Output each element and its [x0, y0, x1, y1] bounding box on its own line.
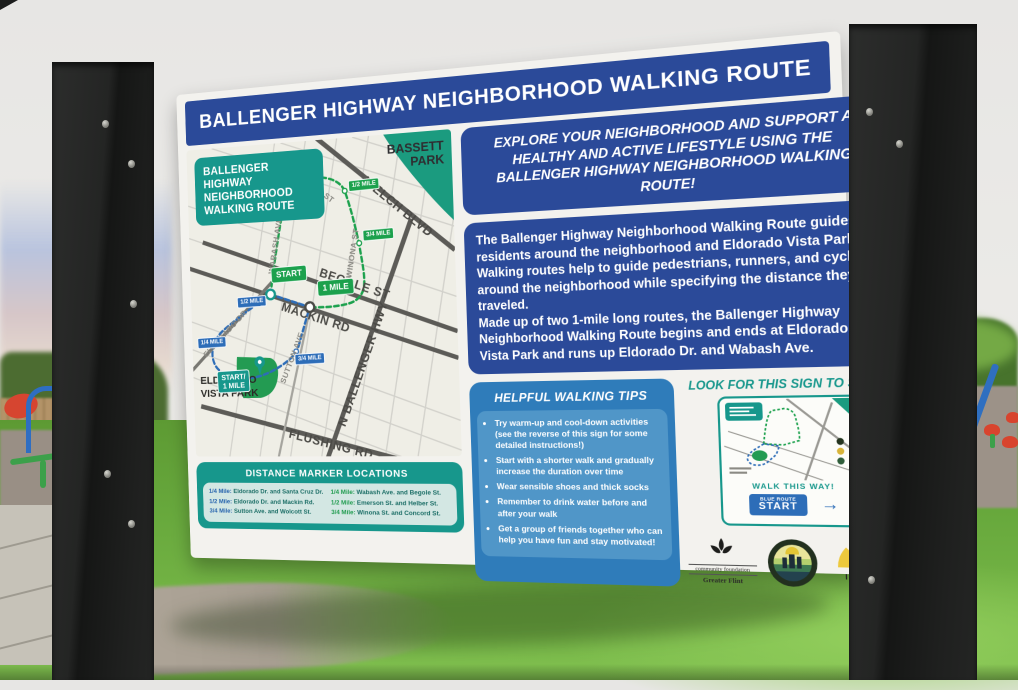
marker-label: 3/4 Mile: [209, 508, 232, 515]
seal-building [796, 557, 801, 569]
start-button-label: START [749, 502, 807, 513]
start-one-mile-line2: 1 MILE [222, 381, 247, 391]
walking-tips-list: Try warm-up and cool-down activities (se… [477, 409, 673, 560]
tip-item: Start with a shorter walk and gradually … [496, 455, 662, 478]
distance-marker-body: 1/4 Mile: Eldorado Dr. and Santa Cruz Dr… [203, 483, 458, 526]
route-description: The Ballenger Highway Neighborhood Walki… [464, 198, 902, 374]
tip-item: Get a group of friends together who can … [498, 523, 665, 548]
marker-text: Emerson St. and Helber St. [357, 499, 438, 507]
seal-building [788, 555, 794, 569]
seal-sun [785, 547, 799, 555]
marker-label: 1/2 Mile: [209, 498, 232, 505]
bassett-park-label2: PARK [410, 152, 444, 169]
walking-route-sign: BALLENGER HIGHWAY NEIGHBORHOOD WALKING R… [176, 31, 860, 574]
mini-legend-line [730, 411, 750, 413]
left-post [52, 62, 154, 680]
bolt [868, 576, 875, 584]
marker-label: 1/2 Mile: [331, 499, 356, 506]
playground-mushroom-seat [1002, 436, 1018, 448]
mini-eldorado-park [752, 451, 768, 462]
tip-item: Wear sensible shoes and thick socks [497, 482, 663, 494]
mini-green-route [762, 408, 799, 445]
marker-text: Sutton Ave. and Wolcott St. [234, 508, 312, 516]
mini-legend-line [729, 407, 753, 409]
green-start-badge: START [270, 264, 307, 283]
green-one-mile-badge: 1 MILE [317, 278, 355, 297]
start-node [266, 290, 275, 300]
map-column: WELCH BLVD BEGOLE ST MACKIN RD FLUSHING … [186, 129, 466, 581]
corner-sliver [0, 0, 18, 10]
marker-text: Winona St. and Concord St. [357, 510, 440, 518]
bolt [128, 160, 135, 168]
seal-building [782, 558, 787, 569]
concrete-path-left [0, 505, 60, 665]
cfgf-region: Greater Flint [689, 577, 757, 586]
mini-park-label-line [729, 468, 751, 470]
blue-three-quarter-mile-badge: 3/4 MILE [294, 352, 325, 365]
marker-text: Wabash Ave. and Begole St. [356, 489, 441, 496]
marker-text: Eldorado Dr. and Santa Cruz Dr. [233, 488, 323, 495]
community-foundation-logo: community foundation Greater Flint [688, 538, 758, 586]
mini-legend-line [730, 414, 756, 416]
blue-half-mile-badge: 1/2 MILE [237, 295, 267, 309]
route-map: WELCH BLVD BEGOLE ST MACKIN RD FLUSHING … [186, 129, 461, 456]
cfgf-name: community foundation [689, 564, 757, 576]
start-button: BLUE ROUTE START [749, 494, 808, 516]
marker-line: 1/4 Mile: Eldorado Dr. and Santa Cruz Dr… [209, 487, 324, 498]
marker-line: 1/4 Mile: Wabash Ave. and Begole St. [330, 488, 449, 499]
street-label-eldorado-dr: ELDORADO DR [202, 308, 248, 359]
flower-icon [709, 538, 734, 559]
tip-item: Try warm-up and cool-down activities (se… [494, 416, 661, 451]
marker-label: 3/4 Mile: [331, 509, 356, 516]
walking-tips-panel: HELPFUL WALKING TIPS Try warm-up and coo… [469, 379, 681, 587]
bolt [128, 520, 135, 528]
playground-green-pole [40, 460, 46, 488]
street-label-winona: WINONA ST [345, 228, 361, 279]
marker-text: Eldorado Dr. and Mackin Rd. [234, 498, 315, 505]
green-route-markers: 1/4 Mile: Wabash Ave. and Begole St. 1/2… [330, 488, 450, 520]
city-of-flint-seal-icon [767, 539, 818, 587]
bolt [130, 300, 137, 308]
mini-sign-preview: WALK THIS WAY! BLUE ROUTE START → [717, 395, 870, 528]
bolt [896, 140, 903, 148]
bottom-row: HELPFUL WALKING TIPS Try warm-up and coo… [469, 374, 910, 593]
mini-map-svg [720, 398, 862, 481]
direction-arrow-icon: → [821, 498, 840, 513]
blue-quarter-mile-badge: 1/4 MILE [197, 336, 227, 349]
marker-label: 1/4 Mile: [330, 489, 355, 496]
walking-tips-title: HELPFUL WALKING TIPS [476, 388, 667, 405]
start-one-mile-badge: START/ 1 MILE [217, 369, 251, 393]
mini-park-label-line [730, 472, 748, 474]
marker-label: 1/4 Mile: [209, 488, 232, 495]
bolt [102, 120, 109, 128]
bolt [866, 108, 873, 116]
mini-logo-dot [836, 438, 844, 445]
walk-this-way-text: WALK THIS WAY! [722, 481, 866, 491]
map-legend: BALLENGER HIGHWAY NEIGHBORHOOD WALKING R… [194, 148, 325, 226]
marker-line: 3/4 Mile: Sutton Ave. and Wolcott St. [209, 507, 324, 518]
sign-body: WELCH BLVD BEGOLE ST MACKIN RD FLUSHING … [178, 97, 861, 592]
bolt [104, 470, 111, 478]
seal-inner [772, 545, 811, 582]
info-column: EXPLORE YOUR NEIGHBORHOOD AND SUPPORT A … [460, 93, 910, 593]
marker-line: 3/4 Mile: Winona St. and Concord St. [331, 508, 451, 520]
mini-logo-dot [837, 448, 845, 455]
blue-route-markers: 1/4 Mile: Eldorado Dr. and Santa Cruz Dr… [209, 487, 324, 518]
playground-mushroom-stem [990, 434, 995, 448]
tip-item: Remember to drink water before and after… [497, 497, 663, 521]
distance-marker-panel: DISTANCE MARKER LOCATIONS 1/4 Mile: Eldo… [196, 462, 464, 532]
distance-marker-title: DISTANCE MARKER LOCATIONS [202, 468, 456, 480]
mini-logo-dot [837, 458, 845, 465]
start-button-row: BLUE ROUTE START → [723, 494, 868, 517]
playground-mushroom-seat [1006, 412, 1018, 423]
